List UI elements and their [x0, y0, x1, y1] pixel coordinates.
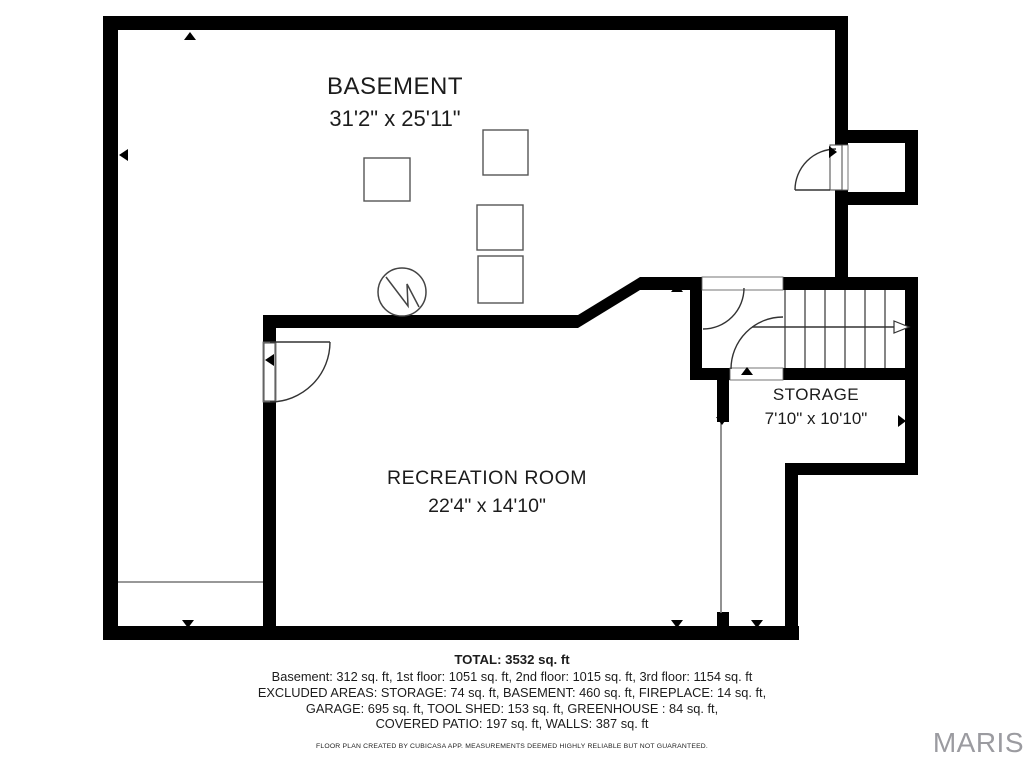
wall-diagonal — [578, 277, 640, 328]
doors — [264, 145, 842, 402]
door-arc — [703, 288, 744, 329]
maris-logo: MARIS — [920, 727, 1024, 759]
room-label-storage: STORAGE 7'10" x 10'10" — [716, 384, 916, 430]
wall — [690, 290, 702, 380]
door-opening — [730, 368, 783, 380]
wall — [690, 368, 918, 380]
total-area: TOTAL: 3532 sq. ft — [0, 652, 1024, 667]
room-dimensions: 31'2" x 25'11" — [245, 105, 545, 133]
wall — [103, 16, 848, 30]
wall — [905, 290, 918, 475]
excluded-areas-line3: COVERED PATIO: 197 sq. ft, WALLS: 387 sq… — [0, 716, 1024, 732]
furniture-box — [477, 205, 523, 250]
fireplace-circle — [378, 268, 426, 316]
room-name: STORAGE — [716, 384, 916, 405]
room-name: BASEMENT — [245, 72, 545, 102]
wall — [835, 190, 848, 290]
direction-marker — [184, 32, 196, 40]
excluded-areas-line1: EXCLUDED AREAS: STORAGE: 74 sq. ft, BASE… — [0, 685, 1024, 701]
door-swing-arc — [731, 317, 783, 369]
door-arc — [270, 342, 330, 402]
door-leaf — [264, 343, 275, 401]
furniture-box — [364, 158, 410, 201]
room-label-basement: BASEMENT 31'2" x 25'11" — [245, 72, 545, 133]
floor-plan-page: BASEMENT 31'2" x 25'11" RECREATION ROOM … — [0, 0, 1024, 768]
furniture-box — [478, 256, 523, 303]
wall — [717, 612, 729, 628]
disclaimer-text: FLOOR PLAN CREATED BY CUBICASA APP. MEAS… — [0, 743, 1024, 750]
wall — [785, 463, 798, 640]
room-dimensions: 7'10" x 10'10" — [716, 408, 916, 429]
wall — [263, 315, 578, 328]
wall — [103, 16, 118, 640]
wall — [103, 626, 799, 640]
door-swing-arc — [264, 342, 330, 402]
door-arc — [731, 317, 783, 369]
door-swing-arc — [703, 288, 744, 329]
excluded-areas-line2: GARAGE: 695 sq. ft, TOOL SHED: 153 sq. f… — [0, 701, 1024, 717]
direction-marker — [119, 149, 128, 161]
wall — [835, 16, 848, 145]
wall — [848, 192, 918, 205]
room-name: RECREATION ROOM — [337, 466, 637, 490]
door-opening — [702, 277, 783, 290]
furniture-box — [483, 130, 528, 175]
door-openings — [263, 145, 848, 402]
floor-areas: Basement: 312 sq. ft, 1st floor: 1051 sq… — [0, 669, 1024, 685]
room-dimensions: 22'4" x 14'10" — [337, 494, 637, 518]
wall — [785, 463, 918, 475]
staircase — [752, 290, 909, 368]
room-label-recreation-room: RECREATION ROOM 22'4" x 14'10" — [337, 466, 637, 519]
area-summary: TOTAL: 3532 sq. ft Basement: 312 sq. ft,… — [0, 652, 1024, 750]
fireplace-icon — [378, 268, 426, 316]
